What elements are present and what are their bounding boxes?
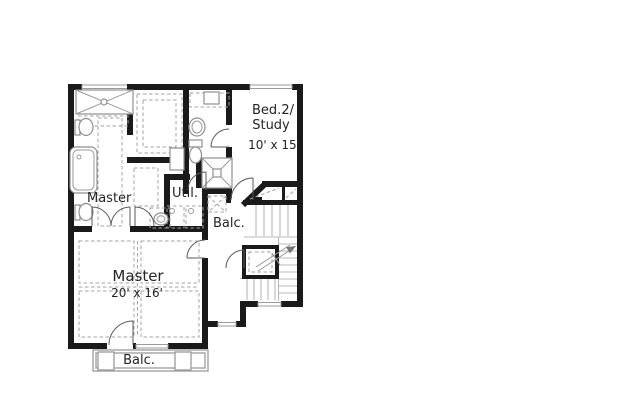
room-label-master-bath: Master	[87, 191, 132, 206]
bathtub	[70, 147, 97, 193]
room-label-hall-balcony: Balc.	[213, 216, 245, 231]
toilet	[75, 119, 93, 136]
washer-dryer	[167, 206, 203, 228]
bath2-sink-counter	[204, 92, 219, 104]
room-dims-bed2: 10' x 15'	[248, 138, 300, 152]
room-dims-master-bedroom: 20' x 16'	[111, 286, 163, 300]
bath2-sink	[189, 118, 205, 136]
door-bath2-bed2	[211, 129, 229, 147]
room-label-master-bedroom: Master	[112, 267, 164, 285]
floor-plan-page: Bed.2/ Study 10' x 15' Master Util. Balc…	[0, 0, 620, 415]
window-stairwell	[258, 303, 281, 307]
door-stair-closet	[226, 250, 244, 268]
bidet	[75, 204, 93, 221]
bath2	[189, 92, 232, 188]
room-label-bed2-line2: Study	[252, 118, 290, 133]
built-in-cabinet	[170, 148, 184, 170]
window-top-right	[250, 85, 292, 89]
under-roof-storage	[243, 181, 297, 205]
room-label-utility: Util.	[172, 186, 198, 201]
room-label-rear-balcony: Balc.	[123, 353, 155, 368]
balcony-post-right	[175, 352, 191, 370]
hall-shelving	[134, 168, 158, 206]
door-rear-balcony	[109, 321, 133, 345]
room-label-bed2-line1: Bed.2/	[252, 103, 295, 118]
balcony-post-left	[98, 352, 114, 370]
window-top-left	[82, 85, 128, 89]
staircase	[240, 205, 297, 301]
door-closet-hall	[135, 207, 154, 226]
bath2-toilet	[189, 140, 202, 163]
window-jog	[218, 323, 236, 327]
linen-closet	[208, 196, 226, 212]
window-master-bottom	[136, 345, 168, 349]
door-master-bedroom	[187, 240, 205, 258]
floor-plan-canvas: Bed.2/ Study 10' x 15' Master Util. Balc…	[0, 0, 620, 415]
shower	[76, 90, 133, 114]
